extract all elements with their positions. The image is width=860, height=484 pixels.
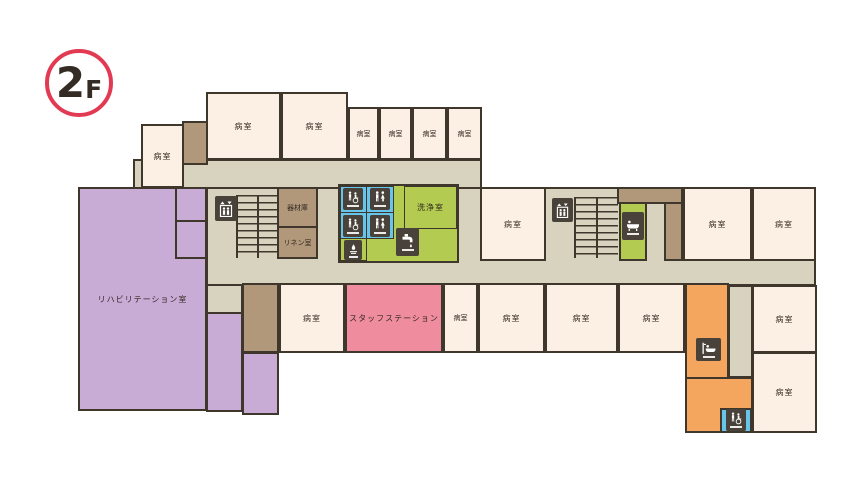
storage-closet	[182, 121, 208, 165]
corridor-branch-right	[728, 285, 753, 378]
room-label: 病室	[573, 313, 591, 324]
room-ward: 病室	[478, 283, 545, 353]
room-ward: 病室	[618, 283, 685, 353]
floor-badge: 2F	[45, 49, 113, 117]
room-label: スタッフステーション	[349, 313, 439, 324]
toilet-icon	[370, 188, 390, 210]
room-label: リネン室	[284, 238, 312, 248]
accessible-toilet-icon	[343, 188, 363, 210]
floor-number: 2	[56, 66, 85, 100]
utility-room	[242, 283, 279, 353]
room-label: 病室	[709, 219, 727, 230]
floor-plan: 2F 病室 病室 病室 病室 病室 病室 病室 リハビリテーション室 器材庫 リ…	[0, 0, 860, 484]
room-label: 病室	[776, 314, 794, 325]
room-ward: 病室	[752, 285, 817, 353]
room-label: 病室	[504, 219, 522, 230]
room-label: 病室	[775, 219, 793, 230]
room-label: 病室	[303, 313, 321, 324]
room-label: 病室	[776, 387, 794, 398]
room-ward: 病室	[752, 352, 817, 433]
toilet-icon	[370, 215, 390, 237]
room-label: 病室	[389, 129, 403, 139]
rehab-annex	[242, 352, 279, 415]
stairs-icon	[574, 197, 618, 258]
stairs-icon	[236, 195, 278, 258]
room-staff-station: スタッフステーション	[345, 283, 443, 353]
room-label: 病室	[154, 151, 172, 162]
room-equipment-storage: 器材庫	[277, 187, 318, 228]
rehab-annex	[206, 312, 243, 412]
room-ward: 病室	[141, 124, 184, 188]
room-label: 器材庫	[287, 203, 308, 213]
room-label: 病室	[306, 121, 324, 132]
handwash-icon	[344, 240, 362, 260]
room-label: 病室	[235, 121, 253, 132]
room-ward: 病室	[379, 107, 412, 160]
room-label: リハビリテーション室	[98, 294, 188, 305]
room-linen: リネン室	[277, 226, 318, 259]
room-label: 病室	[458, 129, 472, 139]
room-ward: 病室	[443, 283, 478, 353]
rehab-sub-room	[175, 187, 207, 222]
corridor-branch-left	[206, 284, 243, 314]
room-label: 病室	[503, 313, 521, 324]
room-label: 病室	[423, 129, 437, 139]
room-ward: 病室	[279, 283, 345, 353]
room-ward: 病室	[480, 187, 546, 261]
floor-suffix: F	[85, 79, 102, 100]
room-ward: 病室	[348, 107, 379, 160]
room-ward: 病室	[206, 92, 281, 160]
faucet-icon	[396, 228, 419, 256]
room-ward: 病室	[281, 92, 348, 160]
rehab-sub-room	[175, 220, 207, 259]
room-ward: 病室	[545, 283, 618, 353]
room-ward: 病室	[447, 107, 482, 160]
room-label: 病室	[643, 313, 661, 324]
accessible-toilet-icon	[726, 409, 746, 431]
room-label: 洗浄室	[417, 202, 444, 213]
room-label: 病室	[357, 129, 371, 139]
accessible-toilet-icon	[343, 215, 363, 237]
elevator-icon	[552, 198, 573, 222]
elevator-icon	[215, 196, 237, 221]
room-ward: 病室	[412, 107, 447, 160]
bathtub-icon	[622, 212, 644, 240]
room-label: 病室	[454, 313, 468, 323]
assisted-bath-icon	[696, 338, 721, 361]
room-ward: 病室	[683, 187, 752, 261]
room-ward: 病室	[752, 187, 816, 261]
room-washing: 洗浄室	[404, 186, 457, 229]
storage-closet	[664, 202, 683, 261]
